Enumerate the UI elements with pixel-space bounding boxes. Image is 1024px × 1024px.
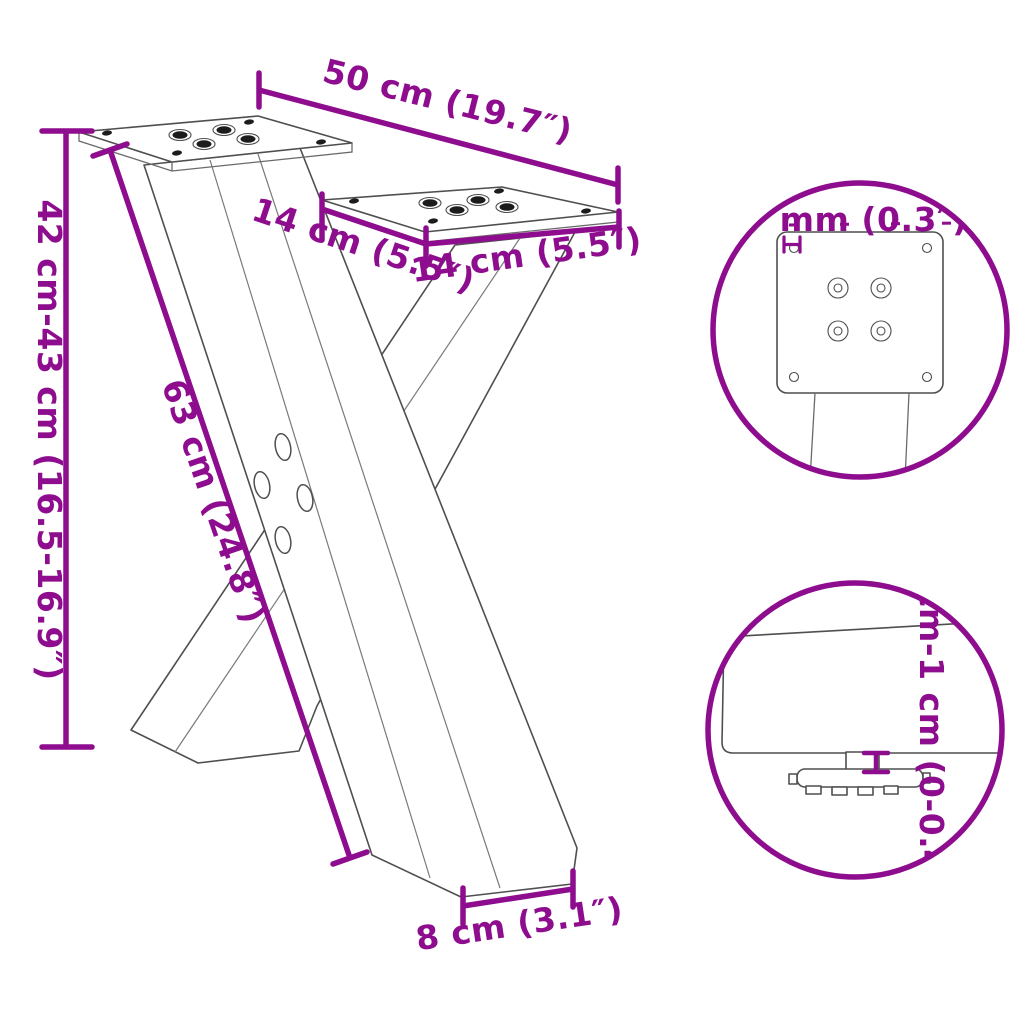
- dim-label-top-width: 50 cm (19.7″): [319, 51, 577, 151]
- dim-height-range: 42 cm-43 cm (16.5-16.9″): [30, 131, 92, 747]
- diagram-canvas: 50 cm (19.7″) 42 cm-43 cm (16.5-16.9″) 6…: [0, 0, 1024, 1024]
- dim-label-height-range: 42 cm-43 cm (16.5-16.9″): [30, 199, 69, 680]
- dimension-diagram: 50 cm (19.7″) 42 cm-43 cm (16.5-16.9″) 6…: [0, 0, 1024, 1024]
- detail-circle-plate-thickness: 7 mm (0.3″): [713, 183, 1007, 480]
- detail-leg-bottom: [722, 621, 1005, 753]
- detail-circle-foot-adjustment: 0 cm-1 cm (0-0.4″): [708, 552, 1005, 903]
- detail-plate: [777, 232, 943, 393]
